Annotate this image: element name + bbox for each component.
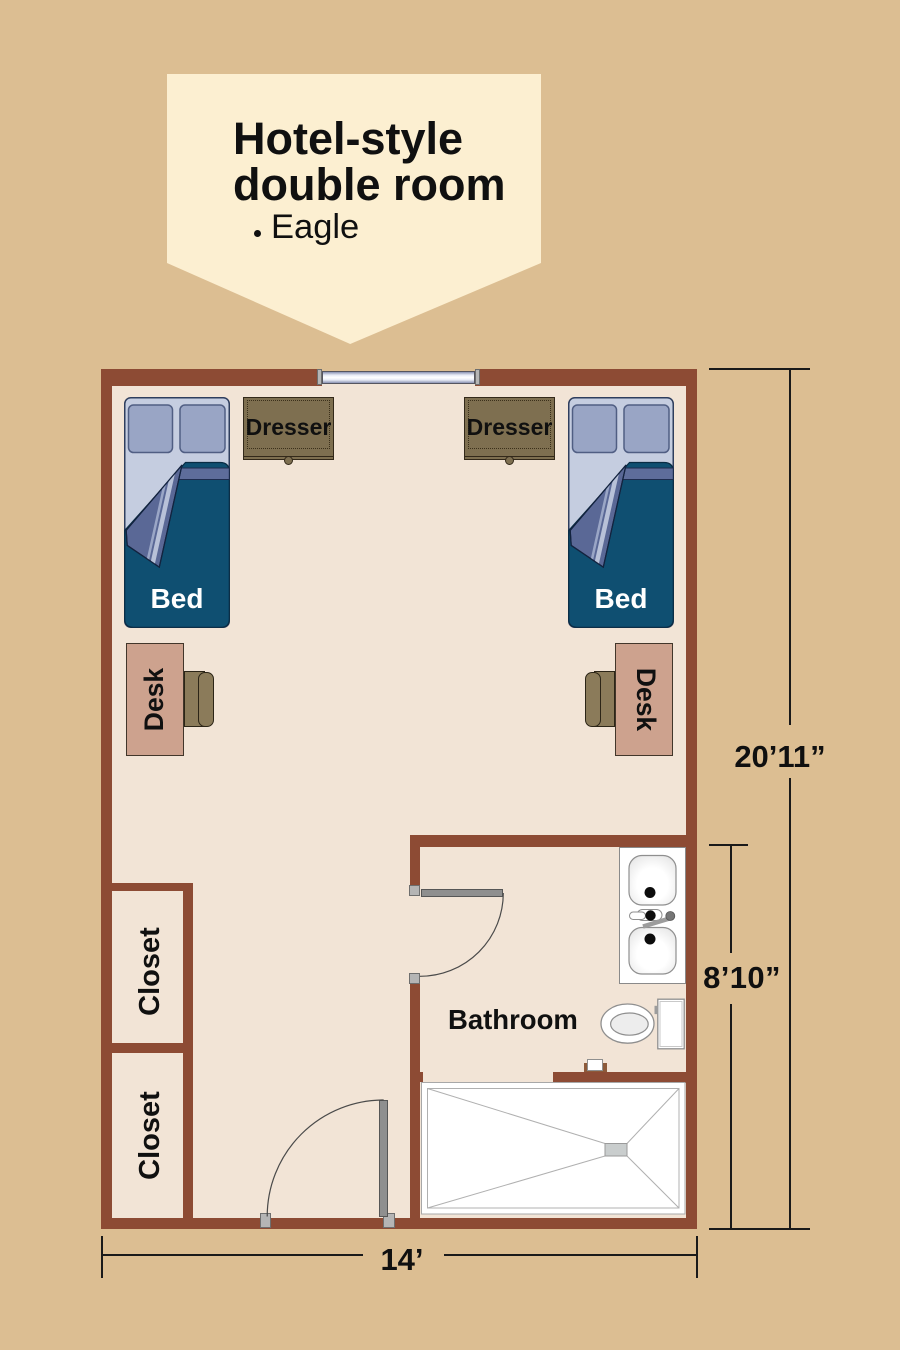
svg-text:Bed: Bed [151, 583, 204, 614]
svg-text:Bed: Bed [595, 583, 648, 614]
